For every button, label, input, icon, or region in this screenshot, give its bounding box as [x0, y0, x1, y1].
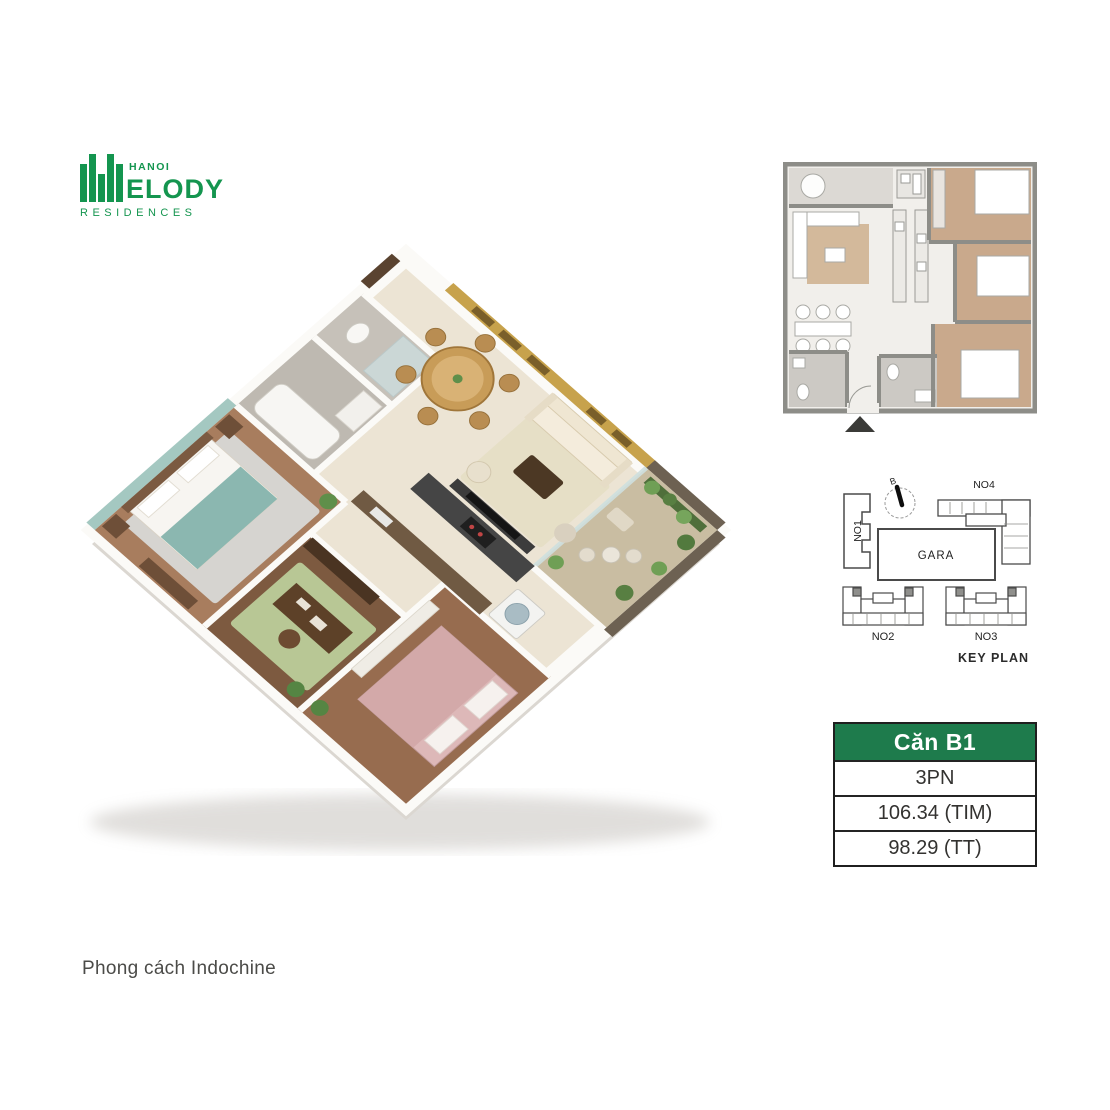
label-no2: NO2	[872, 631, 895, 643]
compass-label: B	[889, 476, 898, 487]
unit-info-table: Căn B1 3PN 106.34 (TIM) 98.29 (TT)	[833, 722, 1037, 867]
unit-area-tt: 98.29 (TT)	[835, 830, 1035, 865]
unit-area-tim: 106.34 (TIM)	[835, 795, 1035, 830]
building-no3	[946, 587, 1026, 625]
highlighted-unit	[905, 588, 913, 596]
label-no4: NO4	[973, 479, 995, 491]
apartment	[86, 241, 734, 811]
label-no3: NO3	[975, 631, 998, 643]
highlighted-unit	[1008, 588, 1016, 596]
floor-plan-2d	[783, 162, 1037, 434]
building-no2	[843, 587, 923, 625]
unit-name: Căn B1	[835, 724, 1035, 760]
highlighted-unit	[853, 588, 861, 596]
entrance-arrow	[845, 416, 875, 432]
brochure-page: HANOI ELODY RESIDENCES	[0, 0, 1110, 1110]
style-caption: Phong cách Indochine	[82, 958, 276, 980]
unit-bedrooms: 3PN	[835, 760, 1035, 795]
label-gara: GARA	[918, 550, 955, 562]
key-plan: NO1 B GARA NO4	[838, 474, 1038, 670]
key-plan-title: KEY PLAN	[958, 651, 1029, 665]
highlighted-unit	[956, 588, 964, 596]
label-no1: NO1	[852, 520, 864, 542]
compass: B	[885, 476, 915, 518]
